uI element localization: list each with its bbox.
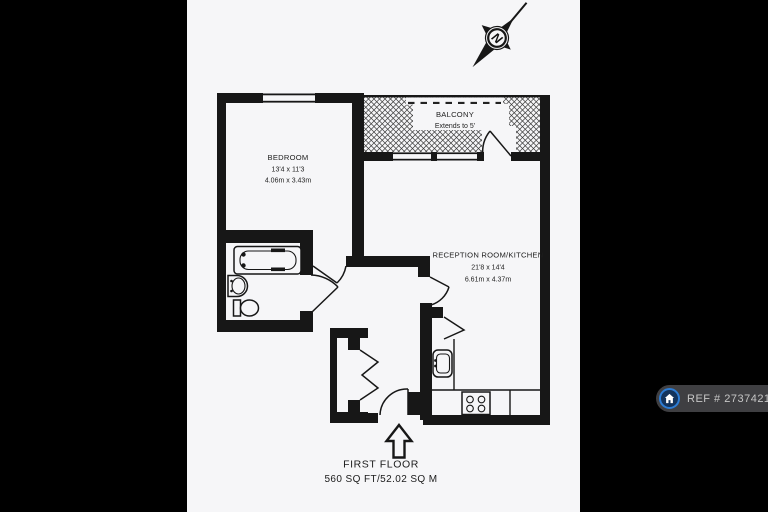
bath-tap-icon bbox=[241, 252, 245, 256]
wash-basin bbox=[228, 276, 248, 297]
area-label: 560 SQ FT/52.02 SQ M bbox=[324, 474, 437, 485]
reception-door bbox=[430, 277, 449, 305]
kitchen-cupboard-door bbox=[444, 317, 464, 339]
reception-size-imperial: 21'8 x 14'4 bbox=[471, 265, 505, 272]
bedroom-size-imperial: 13'4 x 11'3 bbox=[272, 167, 305, 174]
bath-tap-icon bbox=[241, 263, 245, 267]
balcony-label: BALCONY bbox=[436, 110, 474, 119]
reception-window-left bbox=[393, 152, 431, 154]
hob bbox=[462, 392, 490, 415]
bedroom-size-metric: 4.06m x 3.43m bbox=[265, 178, 311, 185]
house-icon bbox=[659, 388, 680, 409]
floor-label: FIRST FLOOR bbox=[343, 459, 419, 471]
closet-folding-door bbox=[360, 350, 378, 400]
bathtub bbox=[234, 247, 301, 275]
reception-size-metric: 6.61m x 4.37m bbox=[465, 277, 511, 284]
reception-label: RECEPTION ROOM/KITCHEN bbox=[433, 251, 544, 260]
toilet bbox=[234, 300, 259, 316]
kitchen-sink bbox=[433, 350, 452, 377]
reception-window-right bbox=[437, 152, 477, 154]
compass-rose-icon: N bbox=[457, 0, 540, 79]
bedroom-window bbox=[263, 94, 315, 96]
entrance-arrow-icon bbox=[387, 425, 412, 458]
bedroom-label: BEDROOM bbox=[268, 153, 309, 162]
ref-badge[interactable]: REF # 2737421 bbox=[656, 385, 768, 412]
balcony-note: Extends to 5' bbox=[435, 123, 475, 130]
floorplan-drawing: N BEDROOM 13'4 x 11'3 4.06m x 3.43m BALC… bbox=[0, 0, 768, 512]
entrance-door bbox=[380, 389, 408, 415]
doors-layer bbox=[311, 131, 511, 415]
ref-number: REF # 2737421 bbox=[687, 393, 768, 405]
